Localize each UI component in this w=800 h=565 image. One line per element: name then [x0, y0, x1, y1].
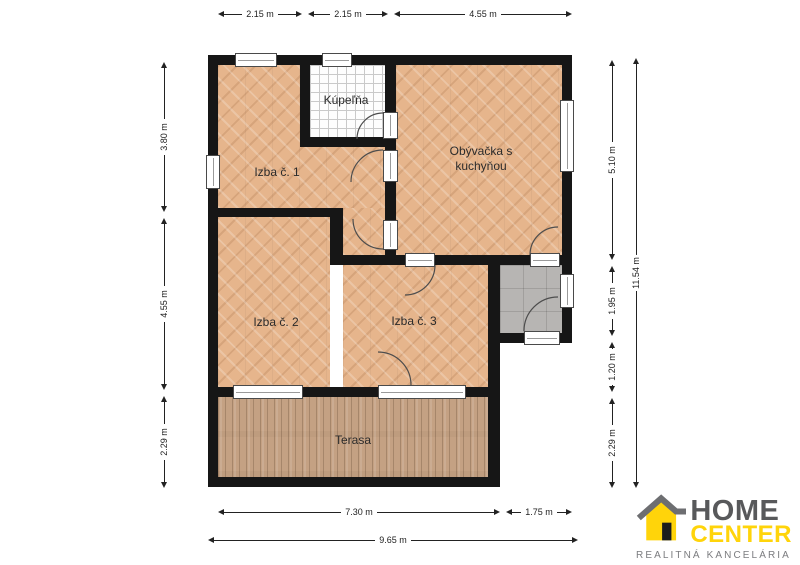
home-center-logo: HOME CENTER REALITNÁ KANCELÁRIA — [636, 490, 792, 561]
dimension-value: 1.95 m — [607, 285, 617, 317]
dimension-bottom-total: 9.65 m — [208, 534, 578, 546]
house-door — [662, 523, 671, 541]
door-arc-izba3 — [405, 265, 435, 295]
room-label-kupelna: Kúpeľňa — [324, 93, 369, 107]
dimension-right-4: 2.29 m — [606, 398, 618, 488]
dimension-value: 9.65 m — [375, 534, 411, 546]
dimension-value: 1.20 m — [607, 351, 617, 383]
dimension-value: 1.75 m — [521, 506, 557, 518]
dimension-left-2: 4.55 m — [158, 218, 170, 390]
dimension-value: 2.29 m — [607, 427, 617, 459]
door-arc-entry-inner — [524, 297, 558, 331]
dimension-value: 11.54 m — [631, 255, 641, 291]
dimension-value: 5.10 m — [607, 144, 617, 176]
room-label-izba-3: Izba č. 3 — [391, 314, 436, 328]
room-label-izba-1: Izba č. 1 — [254, 165, 299, 179]
dimension-right-3: 1.20 m — [606, 342, 618, 392]
door-arc-izba1 — [351, 150, 383, 182]
room-label-izba-2: Izba č. 2 — [253, 315, 298, 329]
floor-plan-canvas: Izba č. 1 Kúpeľňa Obývačka s kuchyňou Iz… — [0, 0, 800, 565]
house-icon — [636, 490, 686, 546]
dimension-right-1: 5.10 m — [606, 60, 618, 260]
door-arc-kupelna — [357, 113, 383, 139]
dimension-bottom-1: 7.30 m — [218, 506, 500, 518]
dimension-right-total: 11.54 m — [630, 58, 642, 488]
door-swing-arcs — [0, 0, 800, 565]
dimension-left-3: 2.29 m — [158, 396, 170, 488]
dimension-top-1: 2.15 m — [218, 8, 302, 20]
dimension-right-2: 1.95 m — [606, 266, 618, 336]
dimension-value: 4.55 m — [465, 8, 501, 20]
dimension-bottom-2: 1.75 m — [506, 506, 572, 518]
door-arc-terasa — [378, 352, 411, 385]
dimension-top-2: 2.15 m — [308, 8, 388, 20]
dimension-value: 7.30 m — [341, 506, 377, 518]
dimension-value: 2.29 m — [159, 426, 169, 458]
dimension-value: 4.55 m — [159, 288, 169, 320]
logo-tagline: REALITNÁ KANCELÁRIA — [636, 550, 792, 561]
door-arc-entry-top — [530, 227, 558, 255]
arrow-right-icon — [296, 11, 302, 17]
dimension-value: 3.80 m — [159, 121, 169, 153]
logo-word-center: CENTER — [690, 524, 792, 546]
dimension-value: 2.15 m — [242, 8, 278, 20]
dimension-value: 2.15 m — [330, 8, 366, 20]
door-arc-izba2-passage — [353, 219, 383, 249]
dimension-top-3: 4.55 m — [394, 8, 572, 20]
room-label-terasa: Terasa — [335, 433, 371, 447]
room-label-obyvacka: Obývačka s kuchyňou — [435, 144, 527, 174]
dimension-left-1: 3.80 m — [158, 62, 170, 212]
